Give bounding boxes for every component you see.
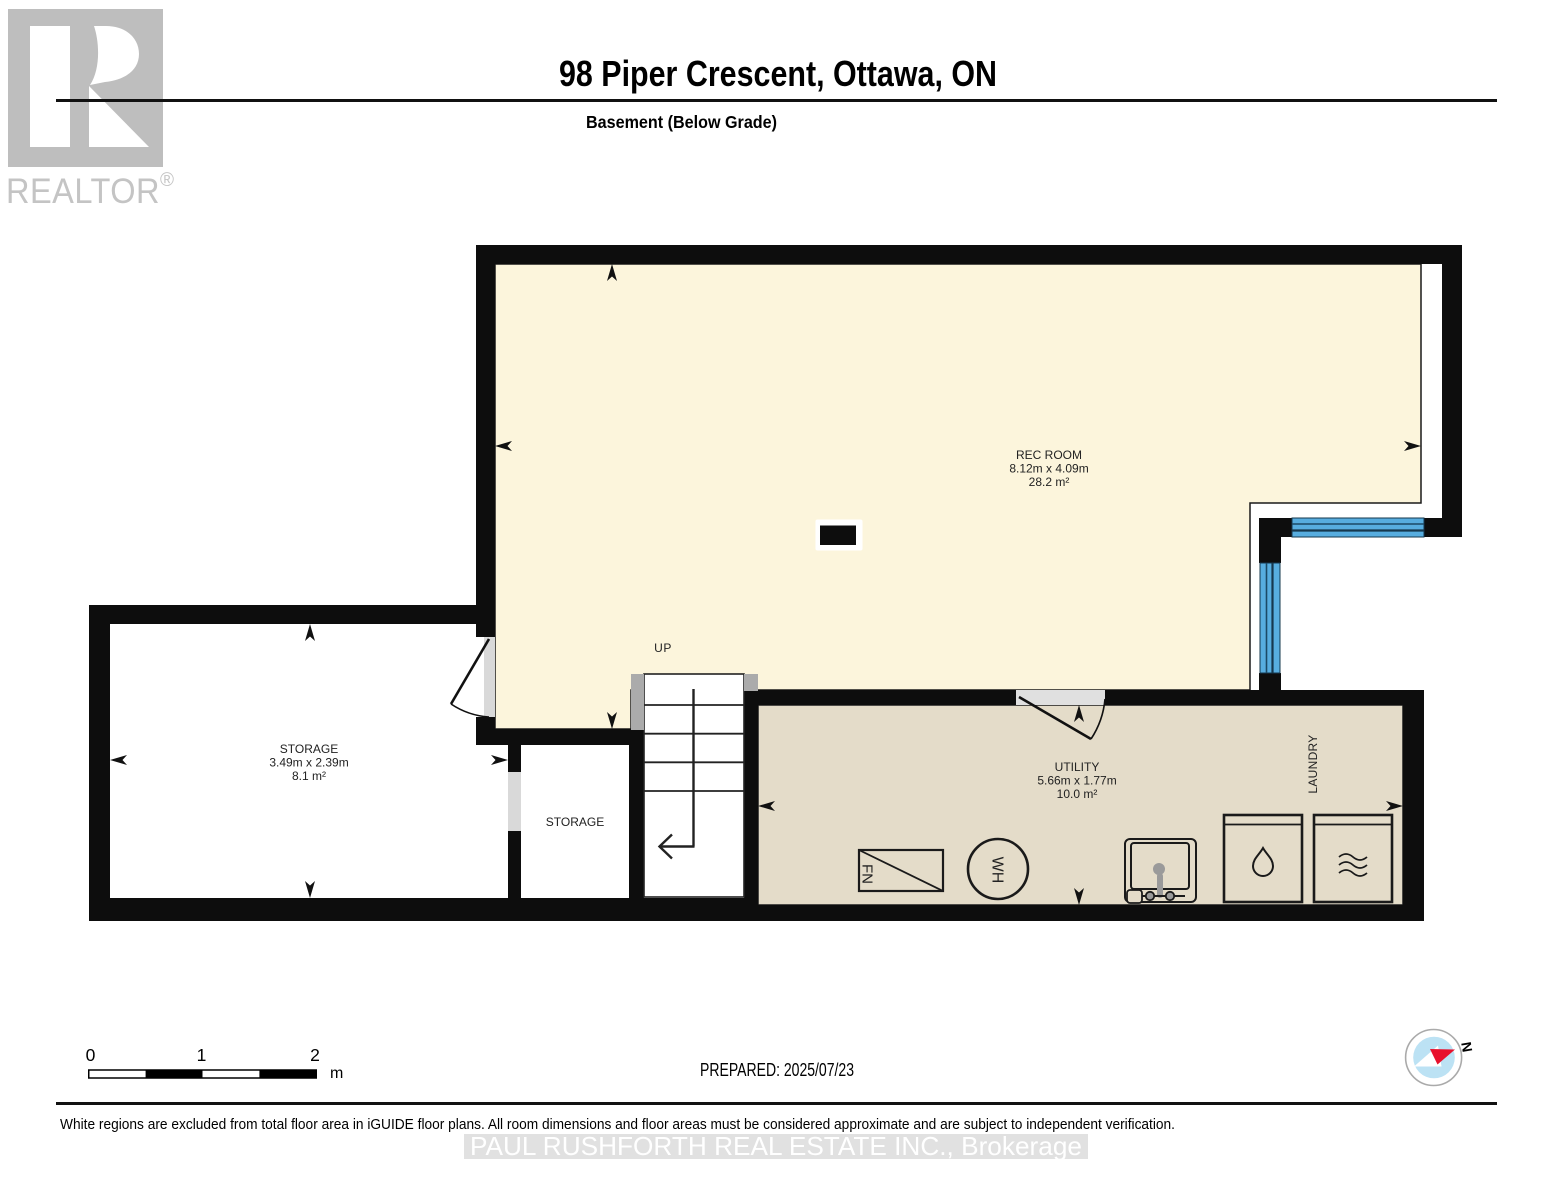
svg-text:10.0 m²: 10.0 m² [1057, 787, 1098, 801]
svg-text:REC ROOM: REC ROOM [1016, 448, 1082, 462]
svg-text:3.49m x 2.39m: 3.49m x 2.39m [269, 756, 348, 770]
svg-text:Basement (Below Grade): Basement (Below Grade) [586, 112, 777, 132]
svg-text:STORAGE: STORAGE [546, 815, 604, 829]
svg-text:5.66m x 1.77m: 5.66m x 1.77m [1037, 774, 1116, 788]
svg-text:m: m [330, 1065, 343, 1082]
svg-text:FN: FN [859, 864, 876, 884]
svg-text:28.2 m²: 28.2 m² [1029, 475, 1070, 489]
svg-text:UTILITY: UTILITY [1055, 760, 1100, 774]
svg-text:PREPARED: 2025/07/23: PREPARED: 2025/07/23 [700, 1060, 854, 1080]
svg-text:2: 2 [310, 1045, 320, 1065]
svg-text:98 Piper Crescent, Ottawa, ON: 98 Piper Crescent, Ottawa, ON [559, 53, 997, 94]
svg-text:®: ® [160, 170, 174, 191]
svg-text:STORAGE: STORAGE [280, 742, 338, 756]
svg-text:WH: WH [989, 857, 1006, 884]
svg-text:8.12m x 4.09m: 8.12m x 4.09m [1009, 462, 1088, 476]
svg-text:8.1 m²: 8.1 m² [292, 769, 326, 783]
svg-text:UP: UP [654, 641, 672, 655]
svg-text:LAUNDRY: LAUNDRY [1306, 734, 1320, 793]
svg-text:REALTOR: REALTOR [6, 172, 160, 211]
svg-text:0: 0 [86, 1045, 96, 1065]
svg-text:1: 1 [197, 1045, 207, 1065]
svg-text:N: N [1458, 1041, 1476, 1054]
svg-text:PAUL RUSHFORTH REAL ESTATE INC: PAUL RUSHFORTH REAL ESTATE INC., Brokera… [470, 1131, 1082, 1161]
